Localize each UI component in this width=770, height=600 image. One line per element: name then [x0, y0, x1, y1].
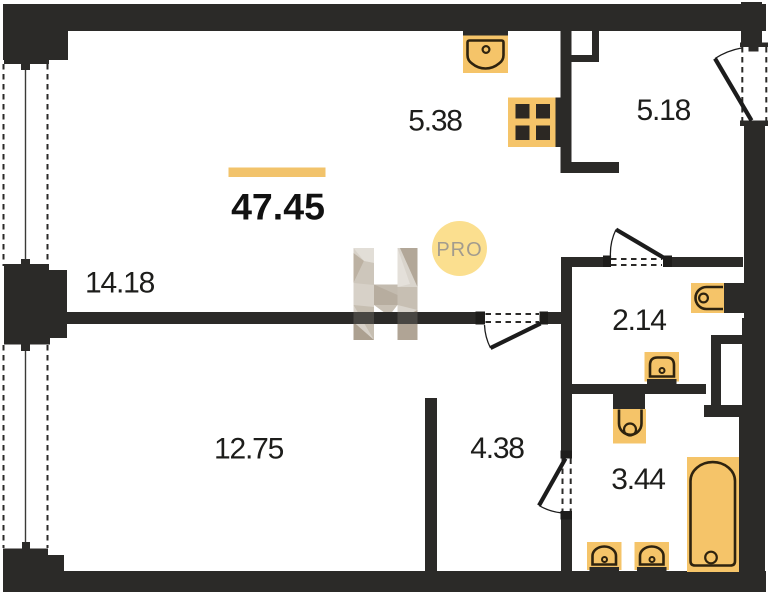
- svg-text:12.75: 12.75: [214, 432, 284, 465]
- svg-text:3.44: 3.44: [611, 463, 665, 496]
- svg-text:PRO: PRO: [436, 239, 482, 261]
- svg-text:2.14: 2.14: [612, 304, 666, 337]
- svg-text:4.38: 4.38: [470, 432, 524, 465]
- svg-text:5.38: 5.38: [408, 105, 462, 138]
- svg-text:5.18: 5.18: [637, 94, 691, 127]
- svg-text:47.45: 47.45: [231, 186, 325, 228]
- svg-text:14.18: 14.18: [85, 266, 155, 299]
